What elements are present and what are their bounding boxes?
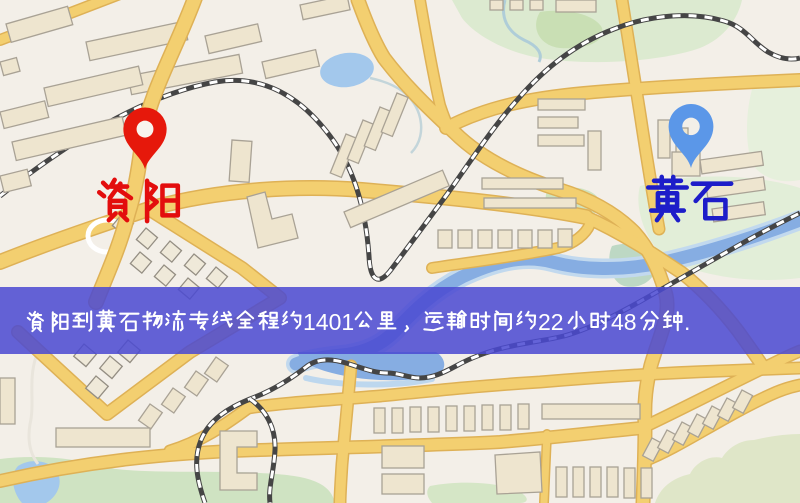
svg-text:22: 22: [538, 309, 564, 335]
svg-text:1401: 1401: [303, 309, 354, 335]
svg-text:48: 48: [611, 309, 637, 335]
svg-text:.: .: [684, 309, 690, 335]
